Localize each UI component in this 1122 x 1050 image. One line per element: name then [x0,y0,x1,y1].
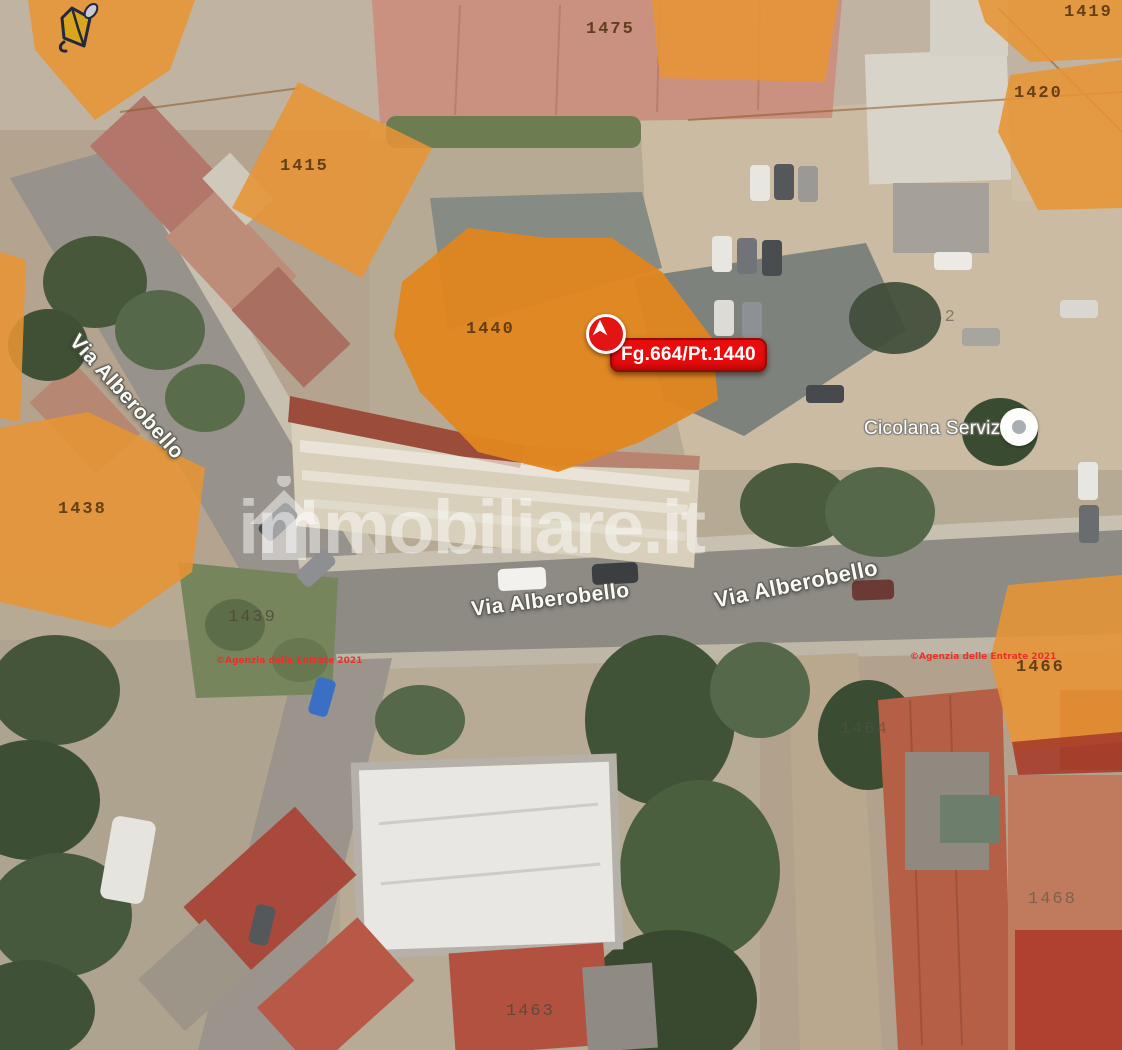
attribution-right: ©Agenzia delle Entrate 2021 [910,652,1056,662]
satellite-canvas [0,0,1122,1050]
parcel-number-1442: 1442 [908,308,957,327]
subject-marker-label[interactable]: Fg.664/Pt.1440 [610,338,767,372]
poi-label-cicolana-servizi[interactable]: Cicolana Servizi [864,418,1005,440]
parcel-number-1463: 1463 [506,1002,555,1021]
parcel-number-1464: 1464 [840,720,889,739]
parcel-number-1440: 1440 [466,320,515,339]
parcel-number-1419: 1419 [1064,3,1113,22]
parcel-number-1420: 1420 [1014,84,1063,103]
navigation-arrow-icon [589,317,611,339]
parcel-number-1415: 1415 [280,157,329,176]
parcel-number-1475: 1475 [586,20,635,39]
parcel-number-1468: 1468 [1028,890,1077,909]
poi-dot-icon[interactable] [1000,408,1038,446]
parcel-number-1439: 1439 [228,608,277,627]
parcel-shape-1475 [652,0,838,82]
attribution-left: ©Agenzia delle Entrate 2021 [216,656,362,666]
map-viewport[interactable]: 1475 1419 1420 1415 1440 1442 1438 1439 … [0,0,1122,1050]
parcel-number-1438: 1438 [58,500,107,519]
subject-marker-pin[interactable] [586,314,626,354]
